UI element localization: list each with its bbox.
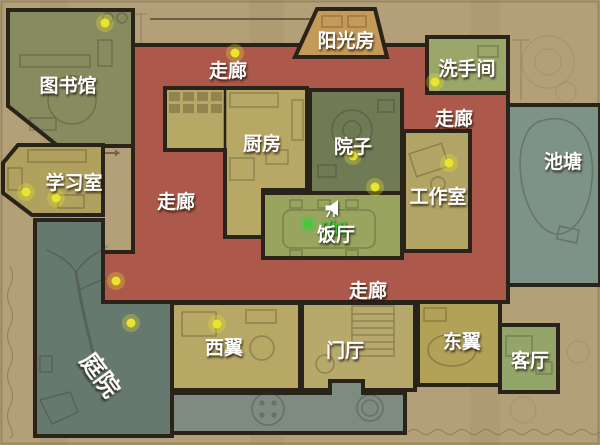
collectible-dot [107,272,125,290]
floor-map: [你] 图书馆 学习室 走廊 阳光房 洗手间 走廊 厨房 院子 走廊 工作室 池… [0,0,600,445]
label-corridor-bottom: 走廊 [349,279,387,302]
collectible-dot [122,314,140,332]
label-corridor-left: 走廊 [157,190,195,213]
label-corridor-top: 走廊 [209,59,247,82]
label-courtyard: 院子 [334,135,372,158]
collectible-dot [208,315,226,333]
collectible-dot [17,183,35,201]
label-corridor-right: 走廊 [435,107,473,130]
label-east-wing: 东翼 [443,330,481,353]
collectible-dot [440,154,458,172]
collectible-dot [366,178,384,196]
label-pond: 池塘 [544,150,582,173]
label-studio: 工作室 [409,185,466,208]
label-study: 学习室 [45,171,102,194]
room-pond[interactable] [508,105,600,285]
label-kitchen: 厨房 [243,132,281,155]
label-foyer: 门厅 [326,339,364,362]
player-dot [299,215,317,233]
label-dining: 饭厅 [316,223,355,246]
label-living: 客厅 [511,349,549,372]
collectible-dot [226,44,244,62]
label-washroom: 洗手间 [438,57,495,80]
collectible-dot [96,14,114,32]
label-west-wing: 西翼 [205,337,243,359]
label-sunroom: 阳光房 [317,29,374,52]
label-library: 图书馆 [39,74,96,97]
